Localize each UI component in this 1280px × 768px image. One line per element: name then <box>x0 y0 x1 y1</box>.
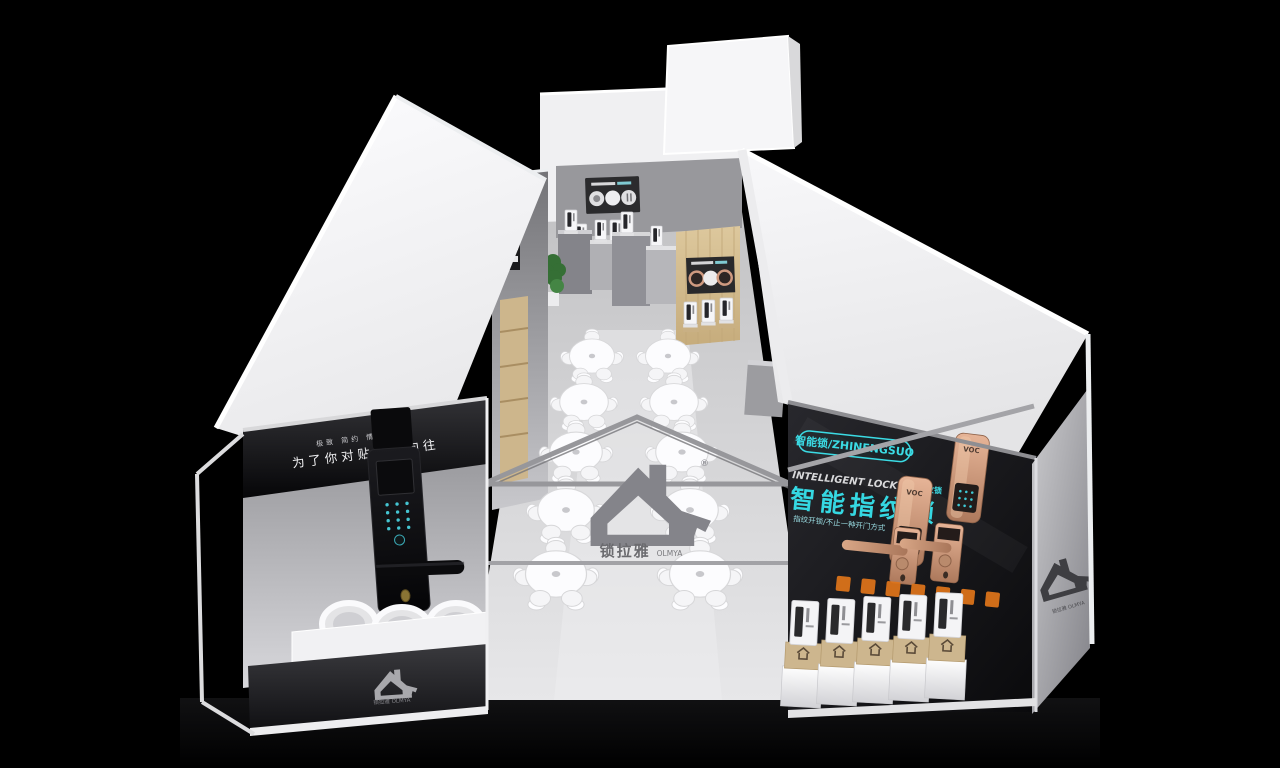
wood-shelf <box>500 296 528 484</box>
fingerprint-sensor <box>394 535 405 546</box>
tower <box>664 36 794 154</box>
keyhole <box>401 589 411 602</box>
back-display-sign <box>585 176 640 214</box>
product-pedestal-row <box>780 592 969 708</box>
alcove-sign <box>686 256 735 294</box>
booth-render: VOC <box>0 0 1280 768</box>
exhibition-render: VOC <box>0 0 1280 768</box>
sign-circle-icons <box>589 190 636 207</box>
wood-alcove <box>676 226 740 346</box>
registered-mark: ® <box>700 459 709 469</box>
